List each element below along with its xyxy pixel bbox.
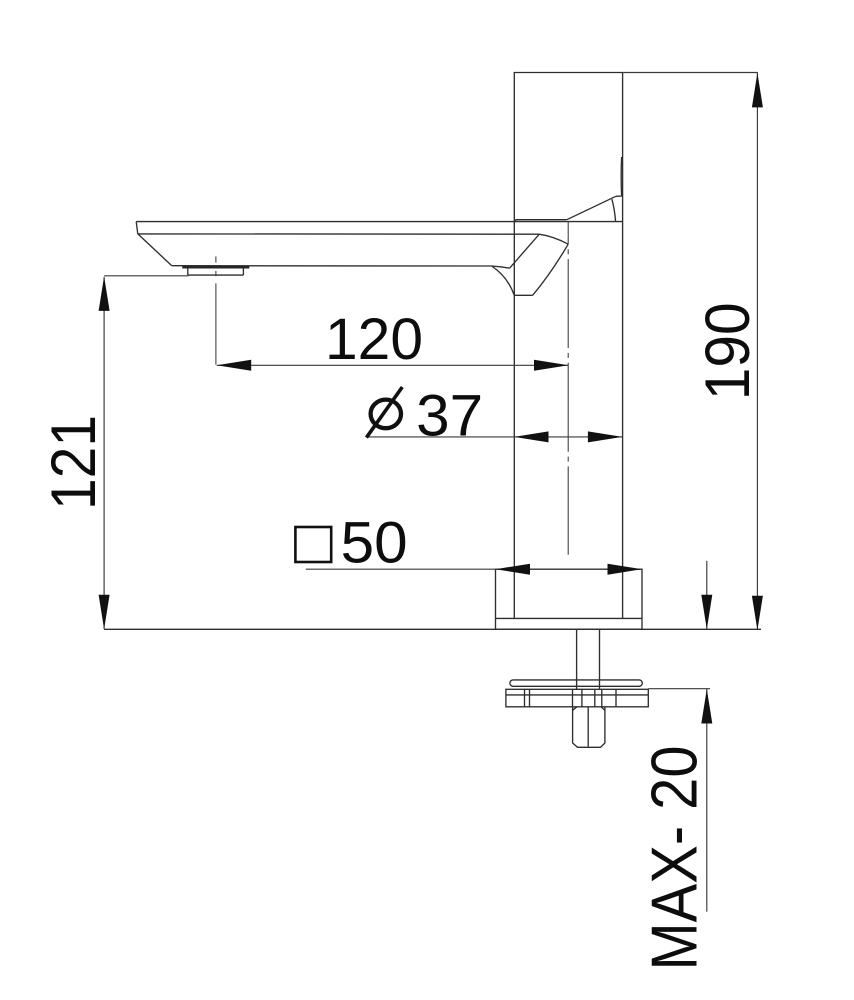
svg-text:50: 50: [341, 510, 408, 575]
svg-text:190: 190: [693, 302, 763, 400]
svg-text:37: 37: [416, 384, 483, 449]
svg-text:121: 121: [39, 415, 109, 510]
svg-text:MAX- 20: MAX- 20: [638, 746, 711, 971]
svg-text:120: 120: [325, 307, 423, 372]
